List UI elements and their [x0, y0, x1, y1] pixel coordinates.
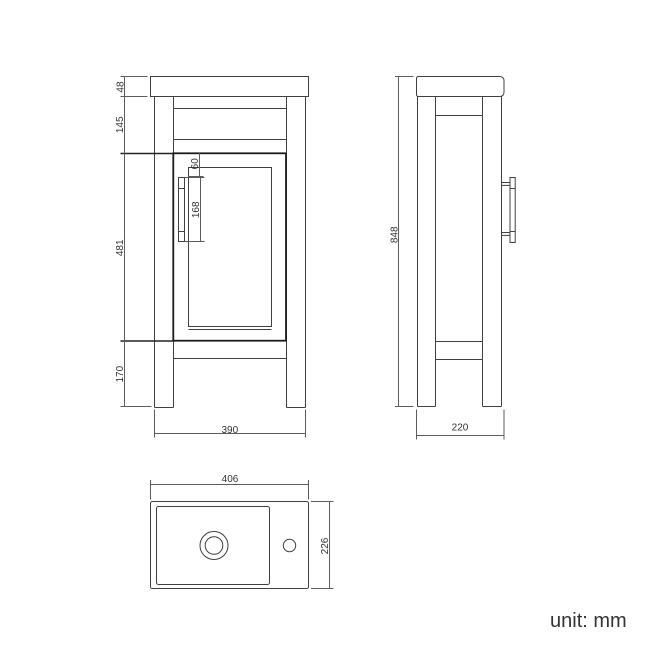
- svg-text:226: 226: [320, 537, 331, 554]
- svg-text:168: 168: [191, 201, 202, 218]
- svg-text:145: 145: [115, 116, 126, 133]
- svg-text:unit: mm: unit: mm: [550, 610, 627, 632]
- svg-text:406: 406: [222, 474, 239, 485]
- svg-text:60: 60: [190, 158, 201, 170]
- svg-text:48: 48: [115, 81, 126, 93]
- svg-text:170: 170: [115, 365, 126, 382]
- svg-text:390: 390: [221, 425, 238, 436]
- svg-text:220: 220: [452, 423, 469, 434]
- svg-text:848: 848: [390, 226, 401, 243]
- svg-text:481: 481: [115, 239, 126, 256]
